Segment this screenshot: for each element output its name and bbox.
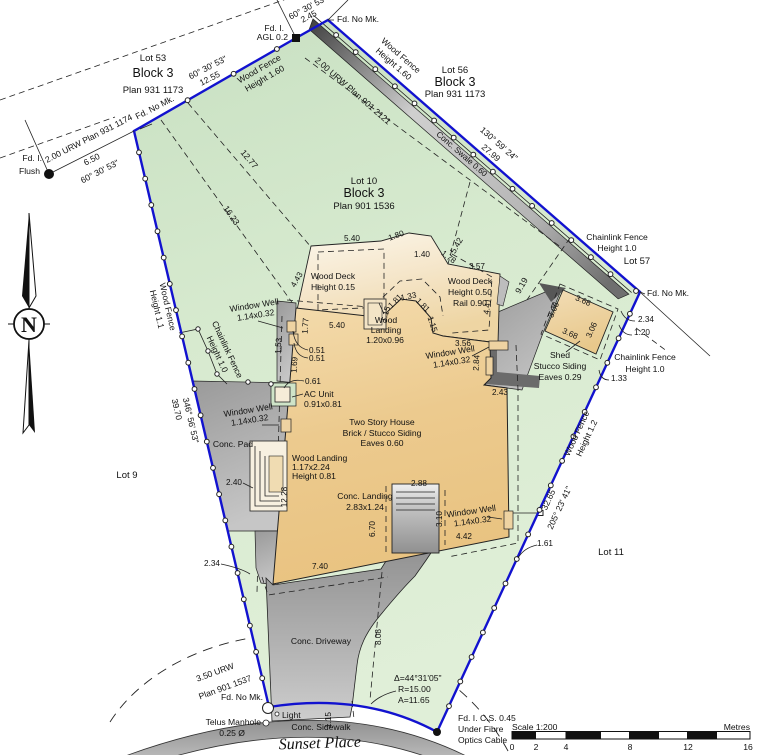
svg-text:Block 3: Block 3 [133, 66, 174, 80]
svg-text:Height 0.15: Height 0.15 [311, 282, 355, 292]
svg-text:Lot 57: Lot 57 [624, 256, 650, 267]
svg-text:Conc. Driveway: Conc. Driveway [291, 636, 352, 646]
svg-text:Fd. No Mk.: Fd. No Mk. [647, 288, 689, 298]
svg-text:Wood Deck: Wood Deck [448, 276, 493, 286]
svg-text:Chainlink Fence: Chainlink Fence [586, 232, 648, 242]
svg-text:Eaves 0.60: Eaves 0.60 [361, 438, 404, 448]
svg-text:2.84: 2.84 [471, 354, 481, 371]
svg-text:Optics Cable: Optics Cable [458, 735, 507, 745]
svg-text:Two Story House: Two Story House [349, 417, 415, 427]
svg-text:A=11.65: A=11.65 [398, 695, 430, 705]
svg-text:Landing: Landing [371, 325, 402, 335]
svg-text:1.15: 1.15 [324, 712, 333, 728]
svg-text:Plan 931 1173: Plan 931 1173 [123, 85, 184, 96]
svg-text:Lot 11: Lot 11 [598, 547, 624, 558]
svg-text:2.83x1.24: 2.83x1.24 [346, 502, 384, 512]
svg-text:3.56: 3.56 [455, 339, 471, 348]
svg-text:7.40: 7.40 [312, 562, 328, 571]
svg-text:1.40: 1.40 [414, 250, 430, 259]
svg-text:Lot 53: Lot 53 [140, 53, 166, 64]
svg-text:2.88: 2.88 [411, 479, 427, 488]
svg-text:Fd. No Mk.: Fd. No Mk. [221, 692, 263, 702]
svg-text:2: 2 [534, 742, 539, 752]
svg-text:Fd. I.: Fd. I. [22, 153, 42, 163]
svg-text:Metres: Metres [724, 722, 750, 732]
svg-text:Eaves 0.29: Eaves 0.29 [539, 372, 582, 382]
svg-text:1.77: 1.77 [300, 317, 310, 334]
svg-text:Wood Deck: Wood Deck [311, 271, 356, 281]
svg-text:Lot 9: Lot 9 [116, 470, 137, 481]
svg-text:3.10: 3.10 [435, 511, 444, 527]
svg-text:Telus Manhole: Telus Manhole [206, 717, 262, 727]
svg-text:Conc. Pad: Conc. Pad [213, 439, 253, 449]
svg-text:Flush: Flush [19, 166, 40, 176]
svg-text:Height 0.50: Height 0.50 [448, 287, 492, 297]
svg-text:2.43: 2.43 [492, 388, 508, 397]
svg-text:Light: Light [282, 710, 301, 720]
svg-text:Fd. No Mk.: Fd. No Mk. [337, 14, 379, 24]
svg-text:Under Fibre: Under Fibre [458, 724, 504, 734]
svg-text:16: 16 [743, 742, 753, 752]
svg-text:3.57: 3.57 [469, 262, 485, 271]
svg-text:Plan 931 1173: Plan 931 1173 [425, 89, 486, 100]
svg-text:AC Unit: AC Unit [304, 389, 334, 399]
svg-text:5.40: 5.40 [329, 321, 345, 330]
svg-text:Shed: Shed [550, 350, 570, 360]
svg-text:Height 1.0: Height 1.0 [597, 243, 636, 253]
svg-text:Conc. Sidewalk: Conc. Sidewalk [291, 722, 351, 732]
svg-text:0.51: 0.51 [309, 354, 325, 363]
svg-text:Stucco Siding: Stucco Siding [534, 361, 587, 371]
svg-text:8.08: 8.08 [374, 629, 383, 645]
svg-text:R=15.00: R=15.00 [398, 684, 431, 694]
svg-text:N: N [21, 312, 37, 337]
svg-text:1.53: 1.53 [273, 337, 283, 354]
svg-text:12.28: 12.28 [280, 486, 289, 507]
svg-text:Block 3: Block 3 [435, 75, 476, 89]
svg-text:Block 3: Block 3 [344, 186, 385, 200]
svg-text:Sunset Place: Sunset Place [278, 734, 361, 754]
svg-text:AGL 0.2: AGL 0.2 [257, 32, 288, 42]
svg-text:0.61: 0.61 [305, 377, 321, 386]
svg-text:Fd. I. C.S. 0.45: Fd. I. C.S. 0.45 [458, 713, 516, 723]
svg-text:Height 1.0: Height 1.0 [625, 364, 664, 374]
svg-text:1.20: 1.20 [634, 328, 650, 337]
svg-text:2.34: 2.34 [204, 559, 220, 568]
svg-text:Plan 901 1536: Plan 901 1536 [333, 201, 394, 212]
svg-text:Height 0.81: Height 0.81 [292, 471, 336, 481]
svg-text:2.34: 2.34 [638, 315, 654, 324]
svg-text:Δ=44°31'05": Δ=44°31'05" [394, 673, 442, 683]
svg-text:5.40: 5.40 [344, 234, 360, 243]
svg-text:1.20x0.96: 1.20x0.96 [366, 335, 404, 345]
svg-text:0.25 Ø: 0.25 Ø [219, 728, 245, 738]
svg-text:0: 0 [510, 742, 515, 752]
svg-text:Brick / Stucco Siding: Brick / Stucco Siding [343, 428, 422, 438]
svg-text:1.33: 1.33 [611, 374, 627, 383]
svg-text:Scale 1:200: Scale 1:200 [512, 722, 558, 732]
svg-text:1.69: 1.69 [289, 356, 299, 373]
svg-text:6.70: 6.70 [368, 521, 377, 537]
svg-text:2.40: 2.40 [226, 478, 242, 487]
svg-text:Chainlink Fence: Chainlink Fence [614, 352, 676, 362]
svg-text:8: 8 [628, 742, 633, 752]
svg-text:0.91x0.81: 0.91x0.81 [304, 399, 342, 409]
svg-text:4: 4 [564, 742, 569, 752]
svg-text:Conc. Landing: Conc. Landing [337, 491, 393, 501]
svg-text:12: 12 [683, 742, 693, 752]
svg-text:1.61: 1.61 [537, 539, 553, 548]
svg-text:4.42: 4.42 [456, 532, 472, 541]
